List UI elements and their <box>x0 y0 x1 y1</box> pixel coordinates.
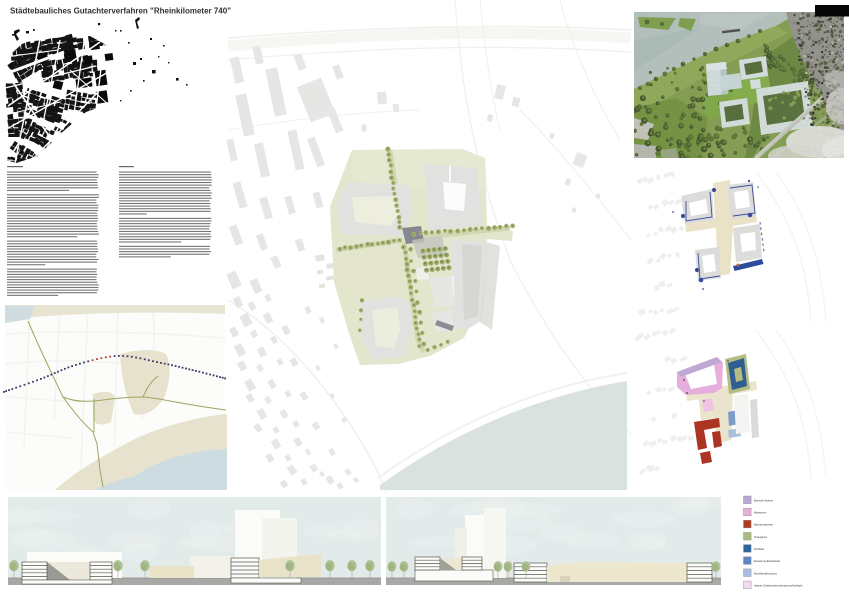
svg-text:Erweiterung Einzelhandel: Erweiterung Einzelhandel <box>754 560 781 563</box>
svg-text:Betreutes Wohnen: Betreutes Wohnen <box>754 499 774 502</box>
svg-text:Kindergarten: Kindergarten <box>754 536 768 539</box>
svg-text:Einzelhandelsnutzung: Einzelhandelsnutzung <box>754 572 777 575</box>
svg-text:Städtebauliches Gutachterverfa: Städtebauliches Gutachterverfahren "Rhei… <box>10 7 231 16</box>
svg-text:Variante: Strassenbahnunterque: Variante: Strassenbahnunterquerung Hochb… <box>754 584 803 587</box>
svg-text:Mietwohnen: Mietwohnen <box>754 512 767 515</box>
svg-text:Hochhaus: Hochhaus <box>754 549 765 551</box>
svg-text:Eigentumswohnen: Eigentumswohnen <box>754 524 774 527</box>
